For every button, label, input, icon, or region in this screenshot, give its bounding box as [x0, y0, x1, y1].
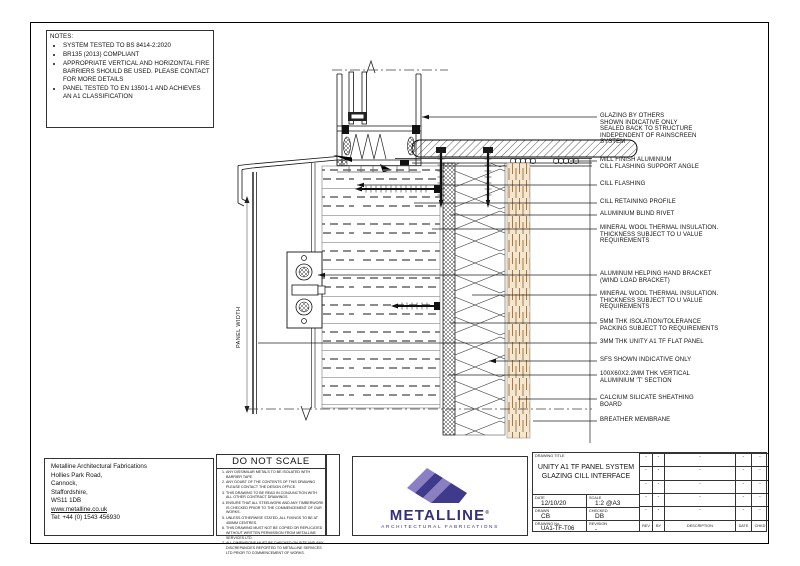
- company-address-line: Cannock,: [51, 480, 213, 489]
- revision-table-cell: -: [735, 493, 751, 506]
- revision-table-cell: -: [735, 506, 751, 519]
- callout-label: CILL RETAINING PROFILE: [600, 199, 770, 206]
- callout-label: ALUMINIUM BLIND RIVET: [600, 211, 770, 218]
- revision-table-header: BY: [652, 520, 664, 532]
- callout-label: ALUMINUM HELPING HAND BRACKET(WIND LOAD …: [600, 271, 770, 284]
- company-address-line: Staffordshire,: [51, 489, 213, 498]
- notes-box: NOTES: SYSTEM TESTED TO BS 8414-2:2020BR…: [46, 30, 214, 128]
- revision-table-cell: -: [652, 453, 664, 466]
- logo-wordmark: METALLINE®: [390, 508, 490, 523]
- callout-label: GLAZING BY OTHERSSHOWN INDICATIVE ONLYSE…: [600, 113, 770, 146]
- revision-table-header: DATE: [735, 520, 751, 532]
- general-note-item: THIS DRAWING TO BE READ IN CONJUNCTION W…: [226, 491, 324, 500]
- calcium-silicate-board: [507, 163, 530, 438]
- callout-label: 3MM THK UNITY A1 TF FLAT PANEL: [600, 339, 770, 346]
- note-item: PANEL TESTED TO EN 13501-1 AND ACHIEVES …: [63, 85, 210, 101]
- revision-table-cell: -: [751, 466, 768, 479]
- callout-label: CALCIUM SILICATE SHEATHINGBOARD: [600, 395, 770, 408]
- general-note-item: ANY DISSIMILAR METALS TO BE ISOLATED WIT…: [226, 470, 324, 479]
- callout-label: BREATHER MEMBRANE: [600, 417, 770, 424]
- mineral-wool-insulation: [322, 166, 440, 408]
- revision-table-cell: -: [639, 506, 652, 519]
- company-phone: Tel: +44 (0) 1543 456930: [51, 514, 213, 523]
- flat-panel: [253, 172, 257, 414]
- revision-table-cell: -: [664, 480, 735, 493]
- revision-table-cell: -: [639, 453, 652, 466]
- revision-table-cell: -: [735, 453, 751, 466]
- revision-value: -: [587, 526, 639, 532]
- callout-label: MINERAL WOOL THERMAL INSULATION.THICKNES…: [600, 291, 770, 311]
- helping-hand-bracket: [287, 252, 325, 328]
- do-not-scale-box: DO NOT SCALE ANY DISSIMILAR METALS TO BE…: [216, 454, 326, 536]
- date-value: 12/10/20: [533, 500, 586, 507]
- notes-title: NOTES:: [50, 33, 210, 41]
- callout-label: 100X60X2.2MM THK VERTICALALUMINIUM 'T' S…: [600, 371, 770, 384]
- callout-label: CILL FLASHING: [600, 181, 770, 188]
- revision-table-header: CHKD: [751, 520, 768, 532]
- revision-table-cell: -: [664, 453, 735, 466]
- do-not-scale-title: DO NOT SCALE: [217, 455, 325, 469]
- revision-table-header: REV: [639, 520, 652, 532]
- revision-table-cell: -: [751, 480, 768, 493]
- note-item: APPROPRIATE VERTICAL AND HORIZONTAL FIRE…: [63, 60, 210, 84]
- note-item: SYSTEM TESTED TO BS 8414-2:2020: [63, 42, 210, 50]
- general-note-item: ALL DIMENSIONS MUST BE CHECKED ON SITE A…: [226, 541, 324, 555]
- revision-table-cell: -: [751, 453, 768, 466]
- general-note-item: THIS DRAWING MUST NOT BE COPIED OR REPLI…: [226, 526, 324, 540]
- company-address-line: Hollies Park Road,: [51, 472, 213, 481]
- spacer-box: [326, 454, 340, 536]
- drawing-title-label: DRAWING TITLE: [533, 453, 639, 458]
- revision-table-cell: -: [639, 480, 652, 493]
- scale-value: 1:2 @A3: [587, 500, 639, 507]
- vertical-t-section: [443, 163, 455, 435]
- revision-table-cell: -: [664, 493, 735, 506]
- metalline-ribbon-icon: [405, 462, 475, 506]
- general-notes-list: ANY DISSIMILAR METALS TO BE ISOLATED WIT…: [226, 470, 325, 555]
- sfs-insulation-quilt: [455, 163, 505, 435]
- revision-table-cell: -: [639, 493, 652, 506]
- company-website-link[interactable]: www.metalline.co.uk: [51, 506, 213, 515]
- company-name: Metalline Architectural Fabrications: [51, 463, 213, 472]
- checked-value: DB: [587, 513, 639, 520]
- callout-label: 5MM THK ISOLATION/TOLERANCEPACKING SUBJE…: [600, 319, 770, 332]
- company-address: Hollies Park Road,Cannock,Staffordshire,…: [51, 472, 213, 506]
- revision-table-cell: -: [751, 493, 768, 506]
- company-info-box: Metalline Architectural Fabrications Hol…: [44, 458, 214, 536]
- revision-table-cell: -: [652, 480, 664, 493]
- revision-table-cell: -: [652, 506, 664, 519]
- callout-label: SFS SHOWN INDICATIVE ONLY: [600, 357, 770, 364]
- revision-table-header: DESCRIPTION: [664, 520, 735, 532]
- revision-table-cell: -: [735, 480, 751, 493]
- drawn-value: CB: [533, 513, 586, 520]
- general-note-item: ANY DOUBT OF THE CONTENTS OF THIS DRAWIN…: [226, 480, 324, 489]
- registered-mark: ®: [485, 510, 490, 516]
- panel-width-label: PANEL WIDTH: [236, 307, 242, 348]
- logo-tagline: ARCHITECTURAL FABRICATIONS: [381, 525, 499, 530]
- revision-table-cell: -: [735, 466, 751, 479]
- notes-list: SYSTEM TESTED TO BS 8414-2:2020BR135 (20…: [63, 42, 210, 101]
- drawing-no-value: UA1-TF-T06: [533, 526, 586, 532]
- leader-arrowhead: [422, 115, 429, 119]
- general-note-item: ENSURE THAT ALL STEELWORK AND ANY TIMBER…: [226, 501, 324, 515]
- callout-label: MINERAL WOOL THERMAL INSULATION.THICKNES…: [600, 225, 770, 245]
- revision-table-cell: -: [639, 466, 652, 479]
- revision-table-cell: -: [751, 506, 768, 519]
- drawing-page: { "sheet": { "panel_width_label": "PANEL…: [0, 0, 800, 566]
- company-address-line: WS11 1DB: [51, 497, 213, 506]
- callout-label: MILL FINISH ALUMINIUMCILL FLASHING SUPPO…: [600, 157, 770, 170]
- revision-table-cell: -: [652, 493, 664, 506]
- title-block: DRAWING TITLE UNITY A1 TF PANEL SYSTEM G…: [532, 452, 767, 532]
- revision-table-cell: -: [664, 466, 735, 479]
- company-logo: METALLINE® ARCHITECTURAL FABRICATIONS: [352, 456, 528, 536]
- drawing-title: UNITY A1 TF PANEL SYSTEM GLAZING CILL IN…: [533, 463, 639, 482]
- general-note-item: UNLESS OTHERWISE STATED, ALL FIXINGS TO …: [226, 516, 324, 525]
- panel-width-dimension: [245, 196, 250, 413]
- note-item: BR135 (2013) COMPLIANT: [63, 51, 210, 59]
- revision-table-cell: -: [652, 466, 664, 479]
- revision-table-cell: -: [664, 506, 735, 519]
- glazing-unit: [337, 72, 421, 172]
